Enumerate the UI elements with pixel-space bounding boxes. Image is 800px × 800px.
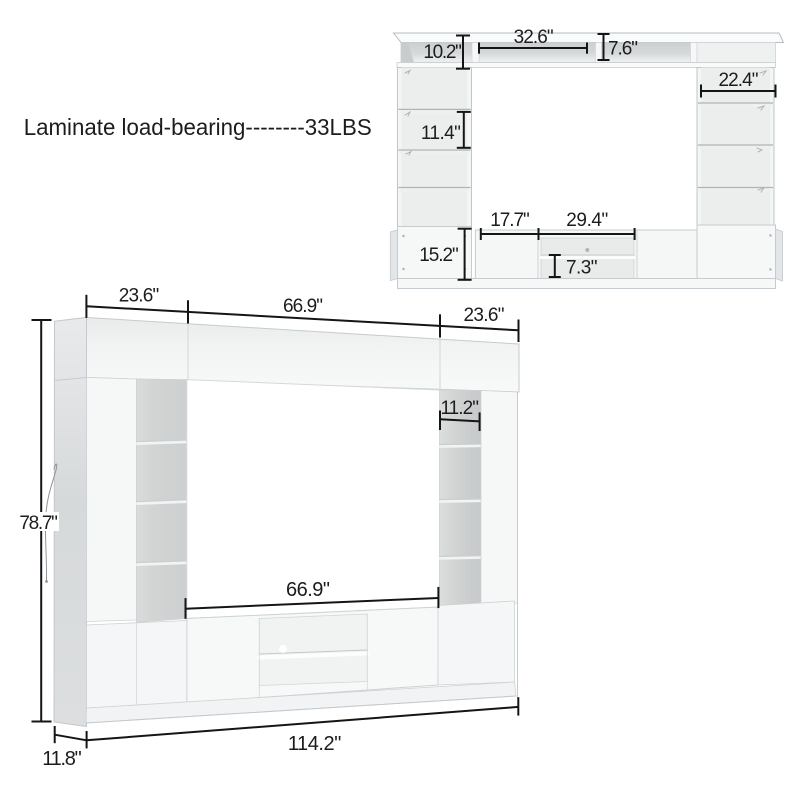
svg-text:15.2": 15.2" xyxy=(419,245,459,266)
svg-text:114.2": 114.2" xyxy=(288,733,342,755)
svg-text:Laminate load-bearing--------3: Laminate load-bearing--------33LBS xyxy=(24,114,372,140)
svg-text:23.6": 23.6" xyxy=(119,286,160,307)
svg-text:11.4": 11.4" xyxy=(421,123,461,144)
svg-text:29.4": 29.4" xyxy=(566,210,608,231)
svg-text:66.9": 66.9" xyxy=(283,296,323,317)
svg-text:11.8": 11.8" xyxy=(42,748,82,770)
svg-text:22.4": 22.4" xyxy=(719,70,759,91)
svg-text:11.2": 11.2" xyxy=(440,398,479,419)
svg-text:66.9": 66.9" xyxy=(286,579,330,601)
svg-text:10.2": 10.2" xyxy=(423,42,462,63)
svg-text:7.6": 7.6" xyxy=(608,39,638,60)
svg-text:32.6": 32.6" xyxy=(514,27,554,48)
svg-text:7.3": 7.3" xyxy=(566,258,598,279)
svg-text:17.7": 17.7" xyxy=(490,210,530,231)
svg-text:23.6": 23.6" xyxy=(464,305,505,326)
svg-text:78.7": 78.7" xyxy=(19,513,58,534)
